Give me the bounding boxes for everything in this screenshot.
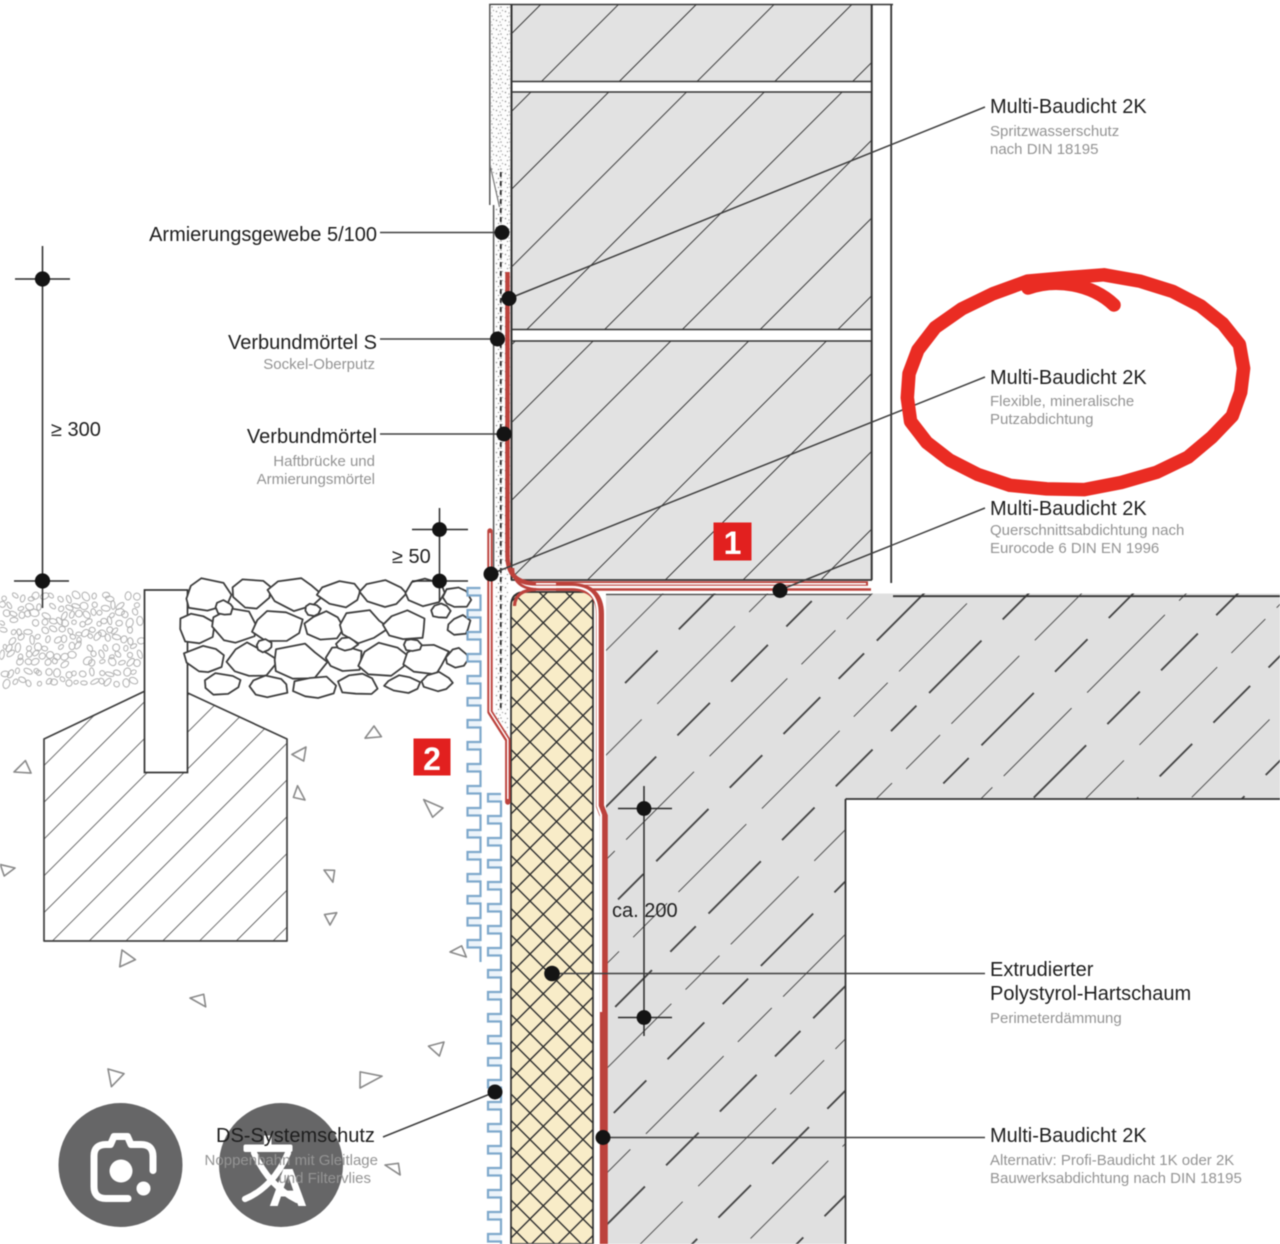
svg-text:Spritzwasserschutz: Spritzwasserschutz	[990, 123, 1119, 140]
svg-text:Putzabdichtung: Putzabdichtung	[990, 411, 1093, 428]
svg-text:Multi-Baudicht 2K: Multi-Baudicht 2K	[990, 96, 1147, 118]
svg-text:Multi-Baudicht 2K: Multi-Baudicht 2K	[990, 367, 1147, 389]
svg-text:Querschnittsabdichtung nach: Querschnittsabdichtung nach	[990, 522, 1184, 539]
svg-text:ca. 200: ca. 200	[612, 900, 678, 922]
svg-text:Sockel-Oberputz: Sockel-Oberputz	[263, 356, 375, 373]
svg-text:Multi-Baudicht 2K: Multi-Baudicht 2K	[990, 1125, 1147, 1147]
svg-text:Multi-Baudicht 2K: Multi-Baudicht 2K	[990, 498, 1147, 520]
svg-text:Haftbrücke und: Haftbrücke und	[273, 453, 375, 470]
svg-text:DS-Systemschutz: DS-Systemschutz	[216, 1125, 375, 1147]
svg-text:1: 1	[724, 525, 742, 561]
svg-text:≥ 300: ≥ 300	[51, 419, 101, 441]
svg-text:Verbundmörtel S: Verbundmörtel S	[228, 332, 377, 354]
svg-text:≥ 50: ≥ 50	[392, 546, 431, 568]
svg-text:Noppenbahn mit Gleitlage: Noppenbahn mit Gleitlage	[205, 1152, 378, 1169]
svg-text:Armierungsmörtel: Armierungsmörtel	[257, 471, 375, 488]
svg-text:Polystyrol-Hartschaum: Polystyrol-Hartschaum	[990, 983, 1191, 1005]
svg-text:Flexible, mineralische: Flexible, mineralische	[990, 393, 1134, 410]
svg-text:Verbundmörtel: Verbundmörtel	[247, 426, 377, 448]
svg-text:Armierungsgewebe 5/100: Armierungsgewebe 5/100	[149, 224, 377, 246]
svg-text:Eurocode 6 DIN EN 1996: Eurocode 6 DIN EN 1996	[990, 540, 1159, 557]
svg-text:nach DIN 18195: nach DIN 18195	[990, 141, 1098, 158]
svg-text:und Filtervlies: und Filtervlies	[278, 1170, 371, 1187]
svg-text:Extrudierter: Extrudierter	[990, 959, 1094, 981]
svg-text:Perimeterdämmung: Perimeterdämmung	[990, 1010, 1122, 1027]
svg-text:2: 2	[423, 741, 441, 777]
svg-text:Bauwerksabdichtung nach DIN 18: Bauwerksabdichtung nach DIN 18195	[990, 1170, 1242, 1187]
svg-text:Alternativ: Profi-Baudicht 1K: Alternativ: Profi-Baudicht 1K oder 2K	[990, 1152, 1234, 1169]
